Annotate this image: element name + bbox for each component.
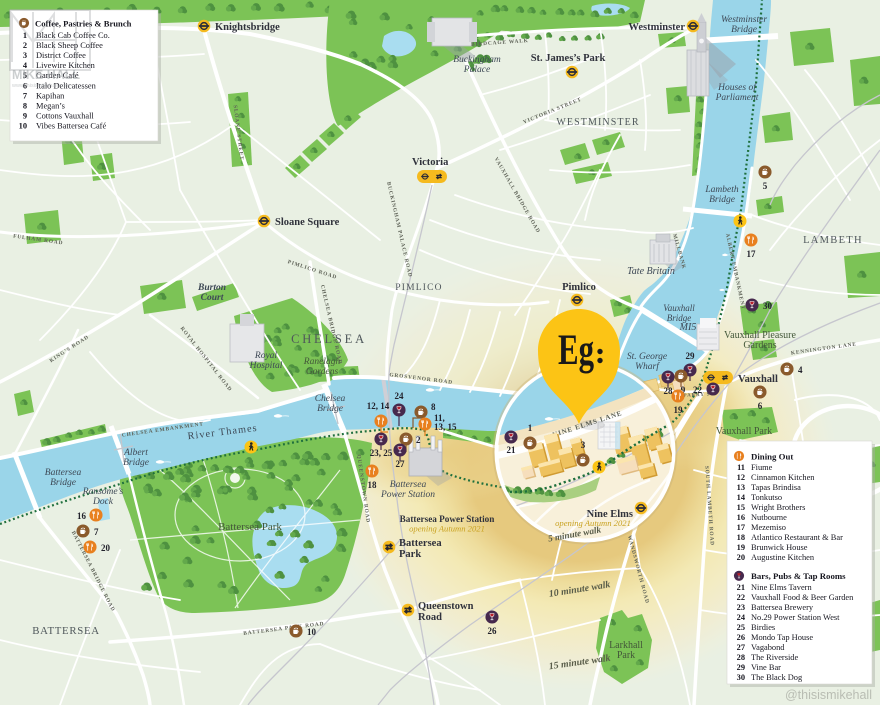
- svg-text:23, 25: 23, 25: [370, 448, 393, 458]
- svg-text:opening Autumn 2021: opening Autumn 2021: [409, 524, 485, 534]
- svg-text:BATTERSEA: BATTERSEA: [32, 625, 100, 637]
- svg-text:2: 2: [23, 41, 27, 50]
- svg-text:Dining Out: Dining Out: [751, 452, 793, 462]
- svg-text:Brunwick House: Brunwick House: [751, 543, 808, 552]
- svg-text:Vibes Battersea Café: Vibes Battersea Café: [36, 122, 106, 131]
- svg-text:18: 18: [368, 480, 378, 490]
- svg-text:23: 23: [737, 603, 745, 612]
- svg-text:27: 27: [396, 459, 406, 469]
- svg-text:13, 15: 13, 15: [434, 422, 457, 432]
- svg-text:Black Cab Coffee Co.: Black Cab Coffee Co.: [36, 31, 110, 40]
- svg-text:27: 27: [737, 643, 745, 652]
- svg-text:3: 3: [581, 440, 586, 450]
- svg-text:26: 26: [488, 626, 498, 636]
- svg-text:24: 24: [737, 613, 746, 622]
- svg-text:Wright Brothers: Wright Brothers: [751, 503, 805, 512]
- svg-text:Sloane Square: Sloane Square: [275, 217, 340, 228]
- svg-text:30: 30: [763, 301, 773, 311]
- svg-text:17: 17: [737, 523, 745, 532]
- svg-text:10: 10: [307, 627, 317, 637]
- svg-text:20: 20: [101, 543, 111, 553]
- svg-text:9: 9: [23, 112, 27, 121]
- svg-text:Black Sheep Coffee: Black Sheep Coffee: [36, 41, 103, 50]
- svg-text:6: 6: [758, 401, 763, 411]
- svg-text:MIKE HALL: MIKE HALL: [12, 68, 80, 82]
- svg-text:BurtonCourt: BurtonCourt: [197, 283, 226, 303]
- svg-text:Westminster: Westminster: [628, 22, 685, 33]
- svg-text:13: 13: [737, 483, 745, 492]
- svg-text:Tonkutso: Tonkutso: [751, 493, 782, 502]
- svg-text:CHELSEA: CHELSEA: [291, 332, 367, 346]
- svg-text:Vauxhall Food & Beer Garden: Vauxhall Food & Beer Garden: [751, 593, 854, 602]
- svg-text:7: 7: [94, 527, 99, 537]
- svg-text:Tate Britain: Tate Britain: [627, 266, 675, 277]
- svg-text:VauxhallBridge: VauxhallBridge: [663, 303, 695, 323]
- svg-text:24: 24: [395, 391, 405, 401]
- svg-text:AlbertBridge: AlbertBridge: [123, 448, 149, 468]
- svg-text:15: 15: [737, 503, 745, 512]
- svg-text:Bars, Pubs & Tap Rooms: Bars, Pubs & Tap Rooms: [751, 571, 846, 581]
- svg-text:Cinnamon Kitchen: Cinnamon Kitchen: [751, 473, 815, 482]
- svg-text:5: 5: [763, 181, 768, 191]
- svg-text:ChelseaBridge: ChelseaBridge: [315, 394, 346, 414]
- svg-text:@thisismikehall: @thisismikehall: [785, 688, 872, 702]
- svg-text:Knightsbridge: Knightsbridge: [215, 22, 280, 33]
- svg-text:25: 25: [737, 623, 745, 632]
- svg-text:16: 16: [77, 511, 87, 521]
- svg-text:30: 30: [737, 673, 745, 682]
- svg-text:8: 8: [431, 402, 436, 412]
- svg-text:Victoria: Victoria: [412, 157, 449, 168]
- svg-text:19: 19: [674, 405, 684, 415]
- svg-text:19: 19: [737, 543, 745, 552]
- svg-text:1: 1: [528, 423, 533, 433]
- svg-text:Atlantico Restaurant & Bar: Atlantico Restaurant & Bar: [751, 533, 843, 542]
- svg-text:www.thisismikehall.com: www.thisismikehall.com: [11, 83, 70, 89]
- svg-text:Cottons Vauxhall: Cottons Vauxhall: [36, 112, 94, 121]
- svg-text:Battersea Park: Battersea Park: [218, 521, 282, 533]
- svg-text:Megan’s: Megan’s: [36, 102, 65, 111]
- svg-text:The Black Dog: The Black Dog: [751, 673, 803, 682]
- svg-text:Birdies: Birdies: [751, 623, 775, 632]
- svg-text:PIMLICO: PIMLICO: [395, 283, 442, 293]
- svg-text:Kapihan: Kapihan: [36, 91, 65, 100]
- svg-text:Augustine Kitchen: Augustine Kitchen: [751, 553, 815, 562]
- svg-text:28: 28: [664, 386, 674, 396]
- svg-text:21: 21: [507, 445, 517, 455]
- svg-text:Vauxhall Park: Vauxhall Park: [716, 426, 772, 437]
- svg-text:29: 29: [737, 663, 745, 672]
- svg-text:Nine Elms Tavern: Nine Elms Tavern: [751, 583, 812, 592]
- svg-text:28: 28: [737, 653, 745, 662]
- svg-text:22: 22: [737, 593, 745, 602]
- svg-text:District Coffee: District Coffee: [36, 51, 86, 60]
- svg-text:29: 29: [686, 351, 696, 361]
- svg-text:RanelaghGardens: RanelaghGardens: [303, 357, 341, 377]
- svg-text:MI5: MI5: [679, 322, 697, 333]
- svg-text:18: 18: [737, 533, 745, 542]
- svg-text:Houses ofParliament: Houses ofParliament: [715, 82, 759, 103]
- svg-text:10: 10: [19, 122, 27, 131]
- svg-text:Mezemiso: Mezemiso: [751, 523, 786, 532]
- svg-text:21: 21: [737, 583, 745, 592]
- svg-text:22: 22: [693, 385, 703, 395]
- svg-text:8: 8: [23, 102, 27, 111]
- svg-text:Fiume: Fiume: [751, 463, 773, 472]
- svg-text:LambethBridge: LambethBridge: [704, 185, 739, 205]
- svg-text:St. James’s Park: St. James’s Park: [531, 53, 606, 64]
- svg-text:11: 11: [737, 463, 745, 472]
- svg-text:Vine Bar: Vine Bar: [751, 663, 781, 672]
- svg-text:2: 2: [416, 435, 421, 445]
- svg-text:3: 3: [23, 51, 27, 60]
- svg-text:20: 20: [737, 553, 745, 562]
- svg-text:Battersea Power Station: Battersea Power Station: [400, 514, 495, 524]
- svg-text:16: 16: [737, 513, 745, 522]
- svg-text:Nutbourne: Nutbourne: [751, 513, 787, 522]
- svg-text:WESTMINSTER: WESTMINSTER: [556, 117, 639, 128]
- svg-text:Vauxhall: Vauxhall: [738, 374, 778, 385]
- svg-text:4: 4: [798, 365, 803, 375]
- svg-text:Vagabond: Vagabond: [751, 643, 785, 652]
- svg-text:12: 12: [737, 473, 745, 482]
- svg-text:Pimlico: Pimlico: [562, 282, 596, 293]
- svg-text:7: 7: [23, 91, 27, 100]
- svg-text:Tapas Brindisa: Tapas Brindisa: [751, 483, 801, 492]
- svg-text:26: 26: [737, 633, 745, 642]
- svg-text:Eg: Eg: [558, 327, 594, 374]
- svg-text:Mondo Tap House: Mondo Tap House: [751, 633, 813, 642]
- svg-text:12, 14: 12, 14: [367, 401, 390, 411]
- svg-text:No.29 Power Station West: No.29 Power Station West: [751, 613, 840, 622]
- svg-text:17: 17: [747, 249, 757, 259]
- svg-text:The Riverside: The Riverside: [751, 653, 798, 662]
- svg-text:Battersea Brewery: Battersea Brewery: [751, 603, 814, 612]
- svg-text:LAMBETH: LAMBETH: [803, 235, 863, 246]
- svg-text:14: 14: [737, 493, 746, 502]
